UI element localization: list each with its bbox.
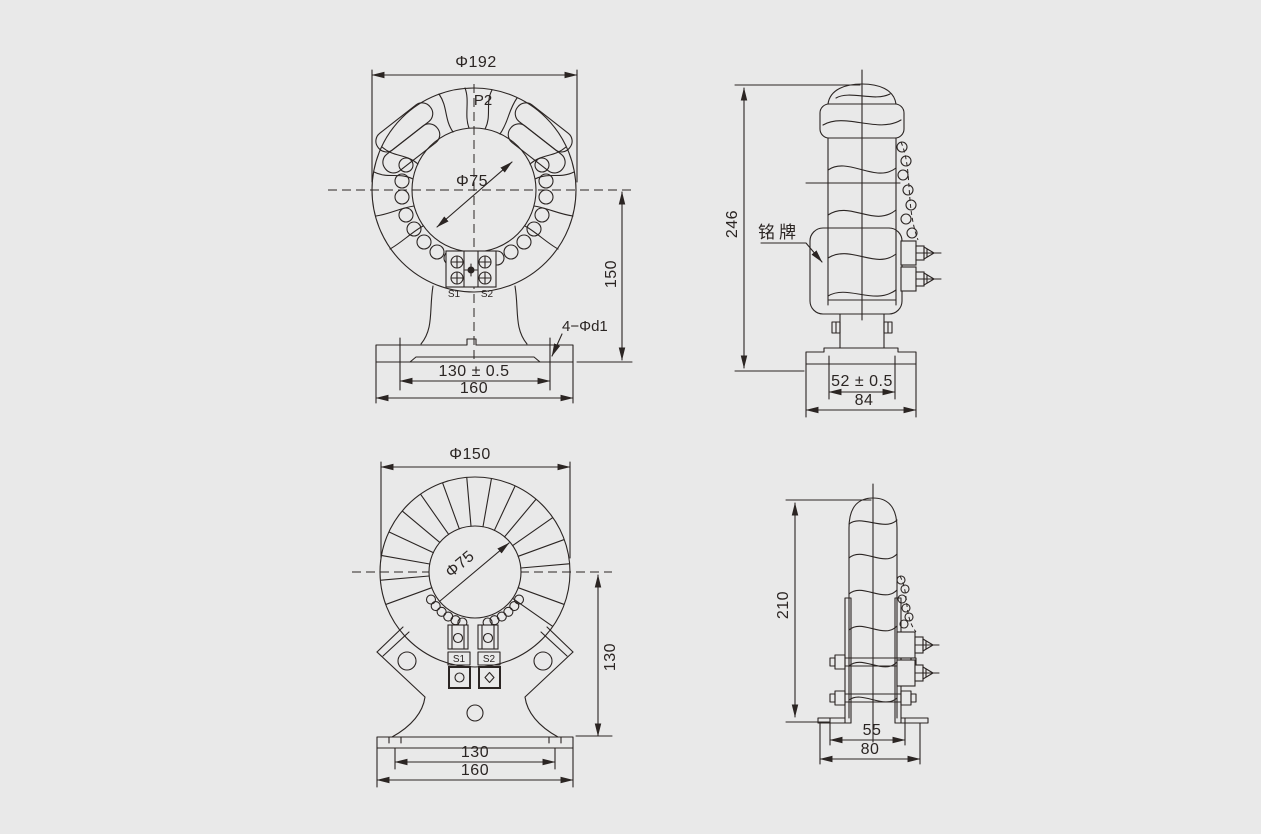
svg-text:150: 150: [603, 260, 620, 288]
dim-height: 210: [775, 500, 871, 722]
front-view-large: S1 S2 P2 Φ75 Φ192 150 4−Φd1 130 ± 0.5: [328, 54, 632, 403]
svg-text:130 ± 0.5: 130 ± 0.5: [438, 363, 509, 380]
terminal-label-s1: S1: [448, 289, 461, 300]
secondary-terminals: [897, 632, 939, 686]
front-view-small: S1 S2 Φ75 Φ150 130 130 160: [352, 446, 619, 787]
leader-mounting-holes: 4−Φd1: [552, 318, 608, 356]
svg-text:Φ192: Φ192: [455, 54, 496, 71]
drawing-canvas: S1 S2 P2 Φ75 Φ192 150 4−Φd1 130 ± 0.5: [0, 0, 1261, 834]
svg-text:210: 210: [775, 591, 792, 619]
terminal-label-s2: S2: [481, 289, 494, 300]
stem-and-base: [806, 314, 916, 364]
dim-height: 130: [576, 575, 619, 736]
svg-text:130: 130: [602, 643, 619, 671]
terminal-label-s1: S1: [453, 654, 466, 665]
engineering-drawing: S1 S2 P2 Φ75 Φ192 150 4−Φd1 130 ± 0.5: [0, 0, 1261, 834]
svg-text:160: 160: [460, 380, 488, 397]
tape-wrap-bundles: [372, 99, 576, 177]
lead-wire-loops: [897, 142, 918, 240]
svg-text:52 ± 0.5: 52 ± 0.5: [831, 373, 893, 390]
terminal-label-s2: S2: [483, 654, 496, 665]
nameplate-label: 铭牌: [758, 223, 800, 242]
svg-text:Φ150: Φ150: [449, 446, 490, 463]
side-view-large: 铭牌 246 52 ± 0.5 84: [724, 70, 941, 417]
svg-text:246: 246: [724, 210, 741, 238]
dim-height: 150: [577, 192, 632, 362]
svg-text:130: 130: [461, 744, 489, 761]
p2-label: P2: [474, 92, 492, 109]
dim-bore-text: Φ75: [456, 173, 488, 190]
svg-text:84: 84: [855, 392, 874, 409]
secondary-terminals: [901, 241, 941, 291]
side-view-small: 210 55 80: [775, 484, 939, 764]
terminal-block: [446, 251, 496, 287]
nameplate-bracket: [810, 228, 902, 314]
svg-text:80: 80: [861, 741, 880, 758]
lead-wire-loops: [897, 576, 916, 632]
dim-base-width: 84: [806, 364, 916, 417]
svg-text:55: 55: [863, 722, 882, 739]
svg-text:4−Φd1: 4−Φd1: [562, 318, 608, 335]
mounting-bracket: [377, 627, 573, 748]
svg-text:160: 160: [461, 762, 489, 779]
leader-nameplate: 铭牌: [758, 223, 822, 262]
